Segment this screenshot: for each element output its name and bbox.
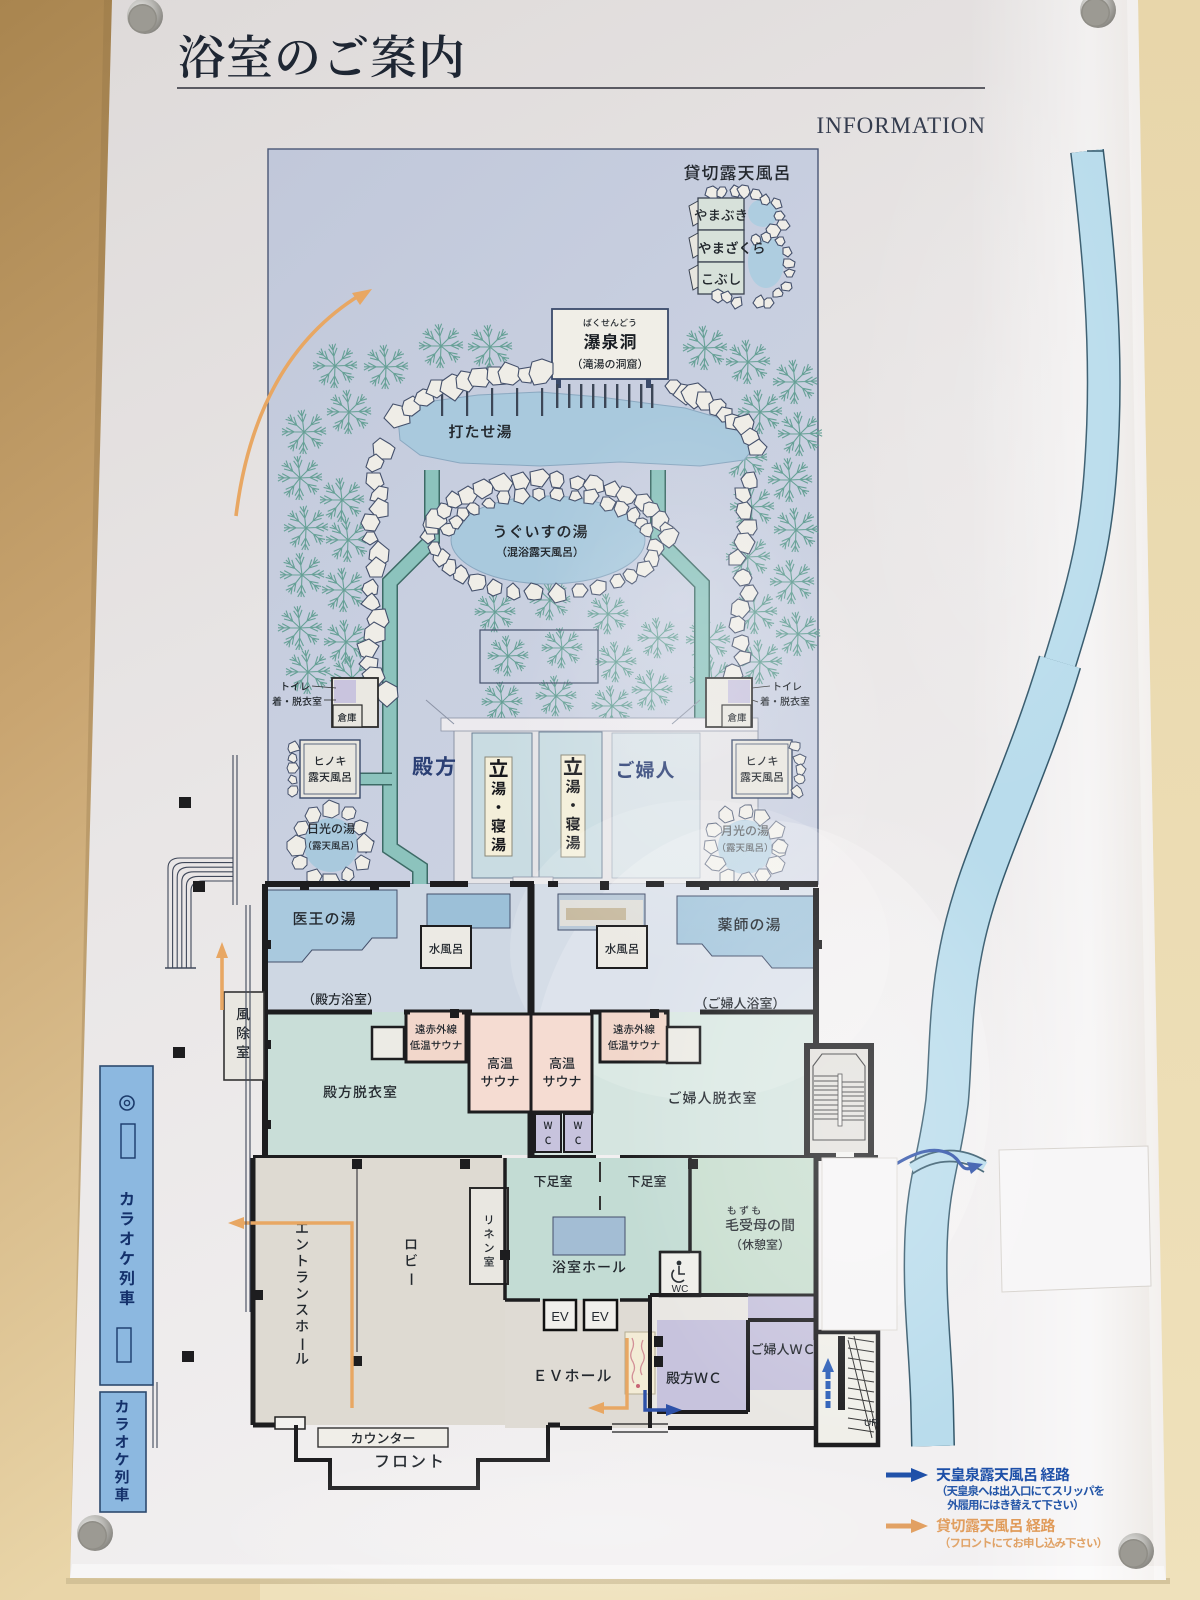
svg-text:EV: EV [591, 1309, 609, 1324]
svg-text:EV: EV [551, 1309, 569, 1324]
